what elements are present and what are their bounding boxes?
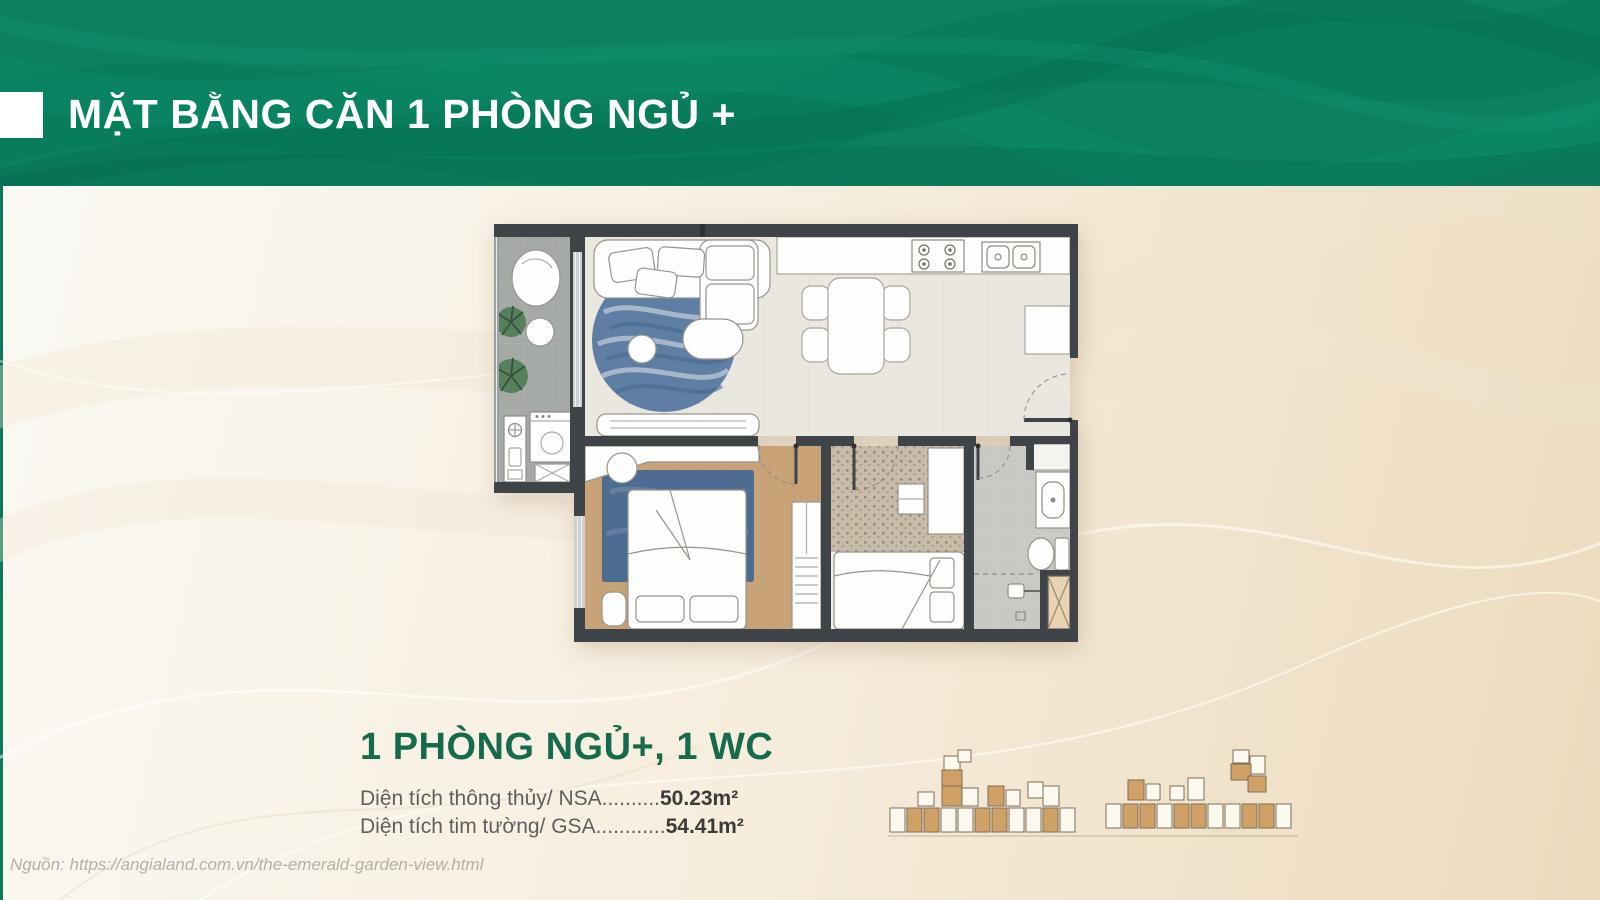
balcony-table — [526, 318, 554, 346]
keyplan-left-wing — [890, 750, 1075, 832]
area-value: 50.23m² — [660, 787, 738, 810]
bedside-table — [607, 453, 637, 483]
dot-leader: ............ — [596, 815, 666, 838]
unit-name: 1 PHÒNG NGỦ+, 1 WC — [360, 726, 773, 769]
site-key-plan — [888, 748, 1298, 843]
shower-mixer — [1008, 584, 1024, 598]
area-label: Diện tích tim tường/ GSA — [360, 815, 596, 838]
header-banner: MẶT BẰNG CĂN 1 PHÒNG NGỦ + — [0, 0, 1600, 186]
dot-leader: .......... — [602, 787, 660, 810]
bedroom-window — [574, 516, 585, 608]
toilet-tank — [1055, 538, 1069, 570]
toilet-bowl — [1028, 538, 1054, 570]
balcony-glass-door — [573, 252, 582, 407]
niche — [1032, 444, 1070, 470]
page-title: MẶT BẰNG CĂN 1 PHÒNG NGỦ + — [68, 90, 736, 138]
coffee-table — [683, 319, 743, 359]
unit-info: 1 PHÒNG NGỦ+, 1 WC Diện tích thông thủy/… — [360, 726, 773, 841]
area-value: 54.41m² — [666, 815, 744, 838]
slide: MẶT BẰNG CĂN 1 PHÒNG NGỦ + — [0, 0, 1600, 900]
desk — [928, 448, 964, 534]
keyplan-right-wing — [1106, 750, 1291, 828]
stool — [628, 335, 656, 363]
header-accent-square — [0, 92, 43, 138]
fridge — [1025, 306, 1070, 354]
source-credit: Nguồn: https://angialand.com.vn/the-emer… — [10, 855, 483, 875]
dining-table — [828, 278, 884, 374]
area-label: Diện tích thông thủy/ NSA — [360, 787, 602, 810]
tv-console — [597, 414, 759, 436]
floor-plan — [494, 224, 1078, 642]
area-row-nsa: Diện tích thông thủy/ NSA..........50.23… — [360, 785, 773, 813]
area-row-gsa: Diện tích tim tường/ GSA............54.4… — [360, 813, 773, 841]
bench — [602, 592, 626, 626]
